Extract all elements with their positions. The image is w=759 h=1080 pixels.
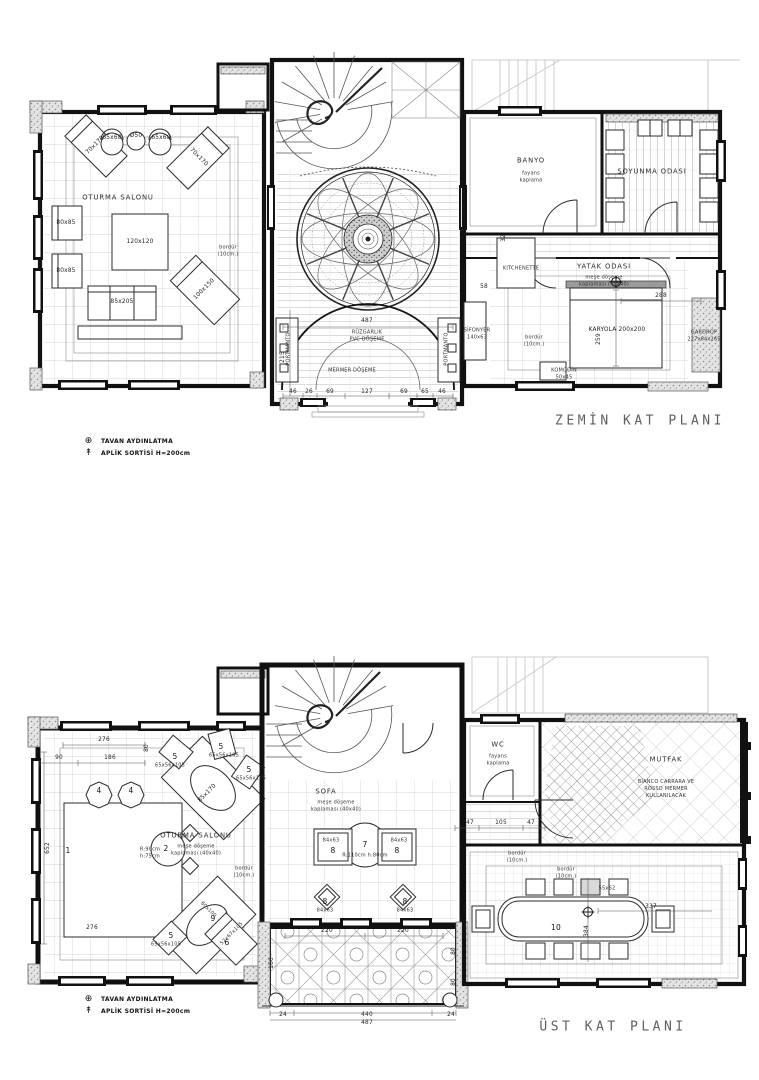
ground-stair-hall: [267, 52, 467, 417]
legend-row-sconce: ↟ APLİK SORTİSİ H=200cm: [82, 1007, 190, 1016]
ground-floor-title: ZEMİN KAT PLANI: [555, 414, 725, 429]
upper-living-room: [28, 717, 265, 986]
upper-balcony: [258, 918, 468, 1008]
legend-label: TAVAN AYDINLATMA: [101, 996, 173, 1003]
upper-sofa-hall: [262, 656, 462, 925]
wall-sconce-icon: ↟: [82, 449, 95, 458]
legend-row-ceiling-light: ⊕ TAVAN AYDINLATMA: [82, 437, 190, 446]
upper-right-wing: [464, 714, 751, 988]
ground-living-room: [30, 101, 264, 390]
ground-floor-legend: ⊕ TAVAN AYDINLATMA ↟ APLİK SORTİSİ H=200…: [82, 437, 190, 461]
legend-label: APLİK SORTİSİ H=200cm: [101, 1008, 190, 1015]
ground-ghost-stair: [472, 60, 740, 112]
ground-right-wing: [464, 106, 726, 391]
upper-floor-plan: [28, 656, 751, 1020]
upper-floor-legend: ⊕ TAVAN AYDINLATMA ↟ APLİK SORTİSİ H=200…: [82, 995, 190, 1019]
wall-sconce-icon: ↟: [82, 1007, 95, 1016]
upper-floor-title: ÜST KAT PLANI: [539, 1020, 686, 1035]
upper-ghost-stair: [472, 657, 708, 713]
legend-label: TAVAN AYDINLATMA: [101, 438, 173, 445]
legend-row-ceiling-light: ⊕ TAVAN AYDINLATMA: [82, 995, 190, 1004]
legend-label: APLİK SORTİSİ H=200cm: [101, 450, 190, 457]
ceiling-light-icon: ⊕: [82, 437, 95, 446]
ceiling-light-icon: ⊕: [82, 995, 95, 1004]
floor-plan-sheet: OTURMA SALONU120x12080x8580x8585x205100x…: [0, 0, 759, 1080]
ground-floor-plan: [30, 52, 740, 417]
legend-row-sconce: ↟ APLİK SORTİSİ H=200cm: [82, 449, 190, 458]
plan-graphics: [0, 0, 759, 1080]
